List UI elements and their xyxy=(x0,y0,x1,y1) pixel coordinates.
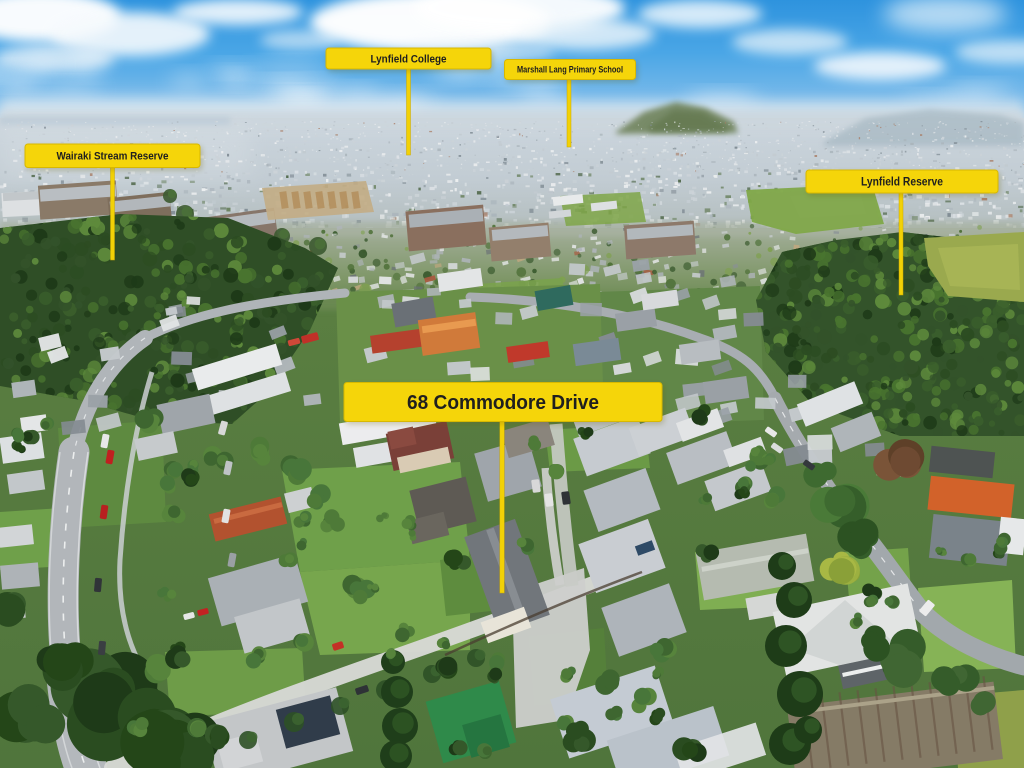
svg-text:Marshall Lang Primary School: Marshall Lang Primary School xyxy=(517,65,623,75)
svg-text:Wairaki Stream Reserve: Wairaki Stream Reserve xyxy=(57,151,169,163)
svg-text:Lynfield Reserve: Lynfield Reserve xyxy=(861,177,943,189)
svg-text:Lynfield College: Lynfield College xyxy=(371,54,447,66)
svg-text:68 Commodore Drive: 68 Commodore Drive xyxy=(407,392,599,414)
